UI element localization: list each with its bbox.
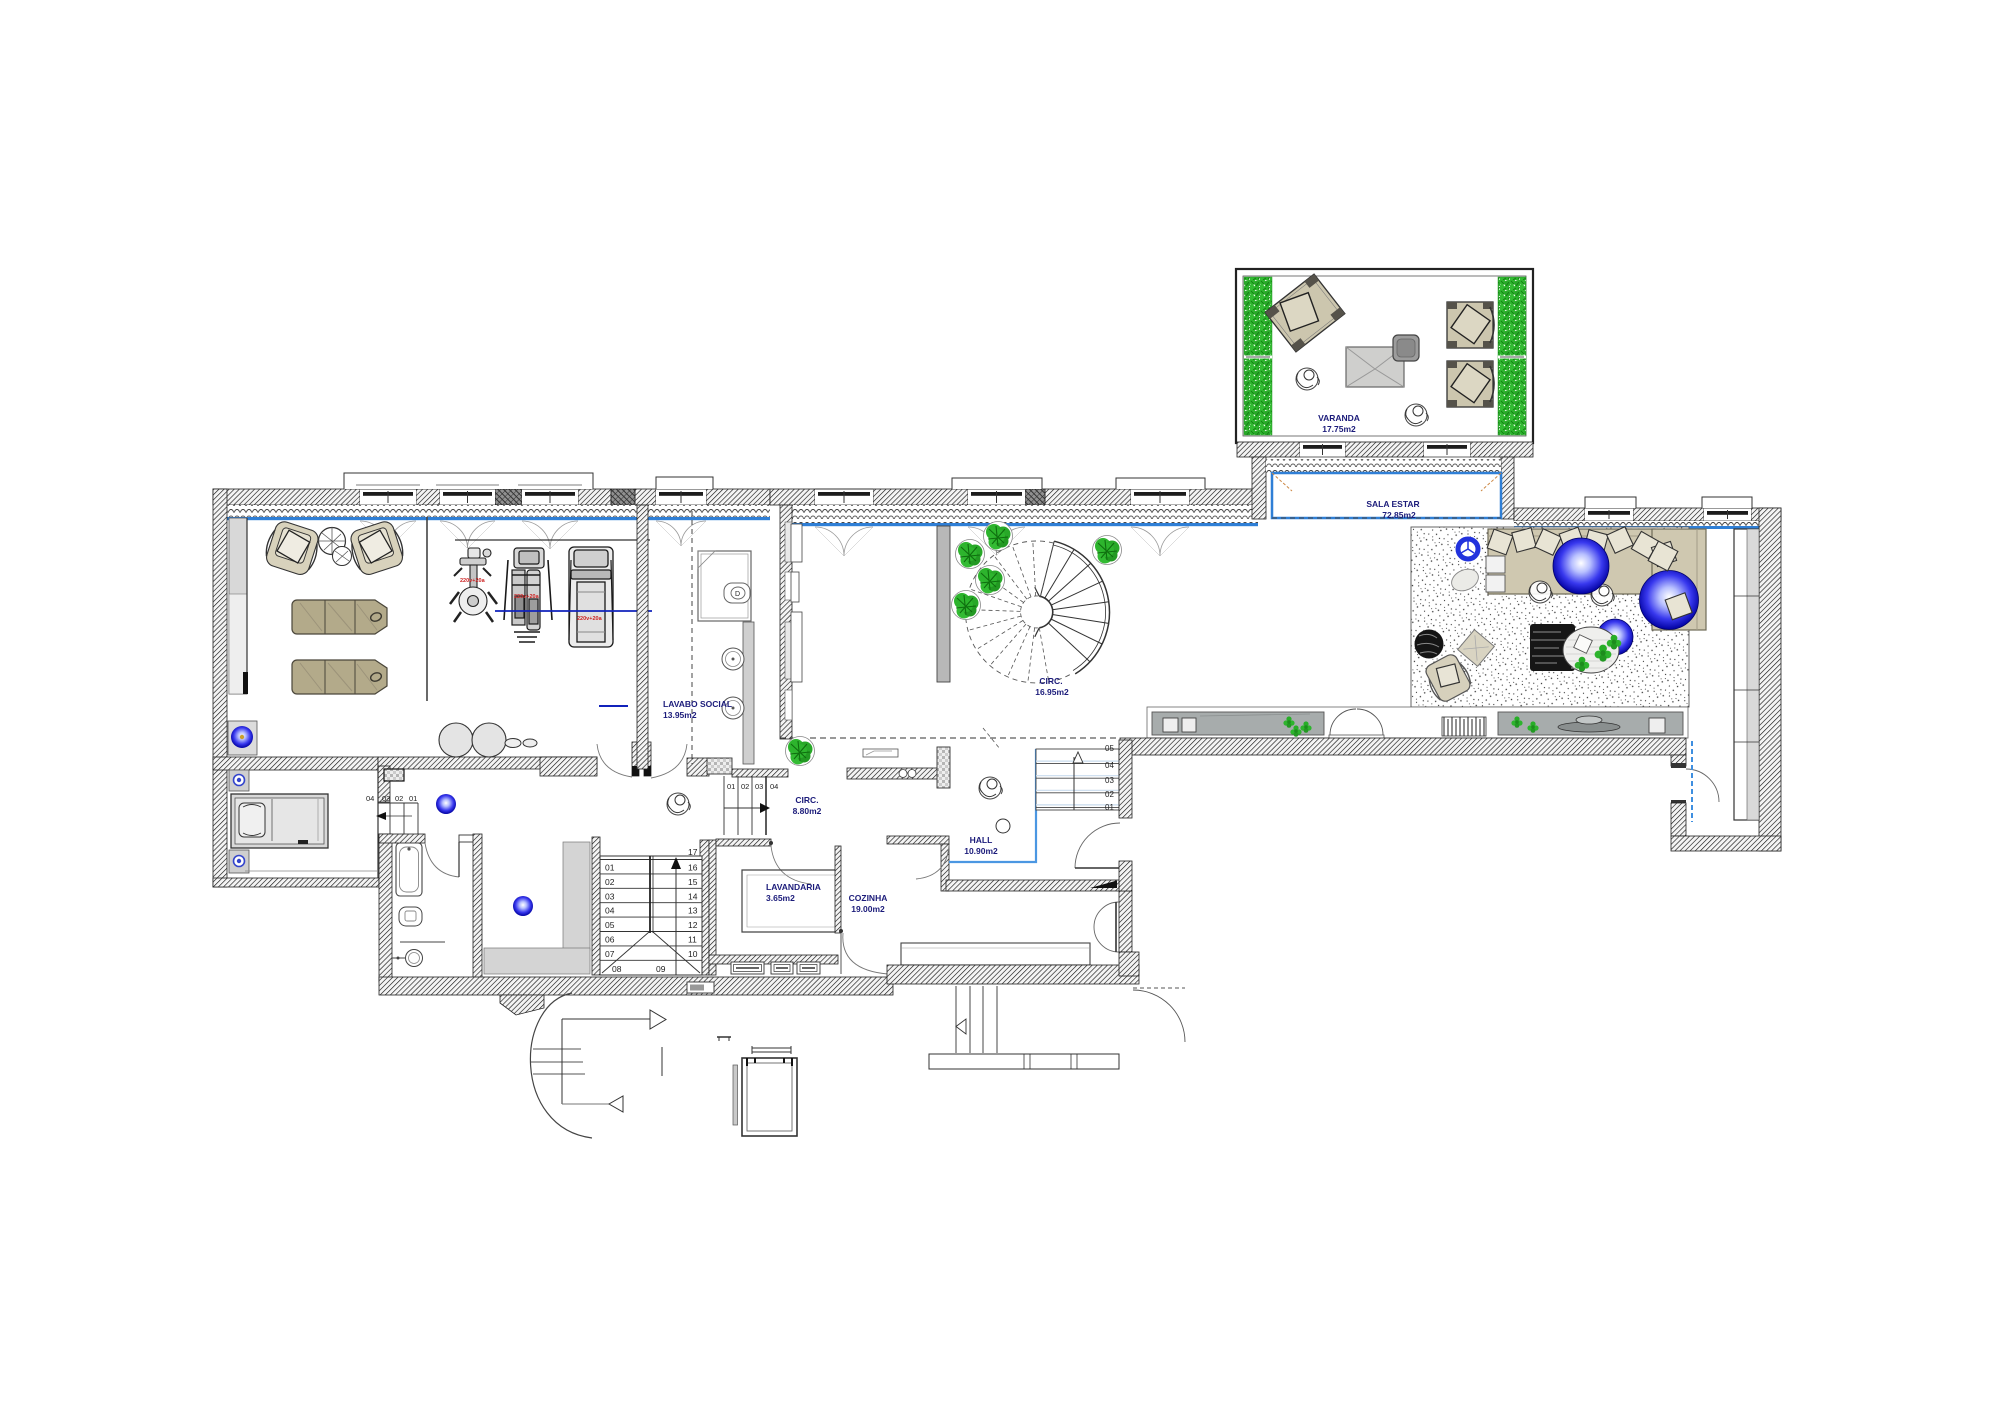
- svg-text:LAVANDARIA: LAVANDARIA: [766, 882, 821, 892]
- svg-text:01: 01: [1105, 803, 1114, 812]
- svg-text:LAVABO SOCIAL: LAVABO SOCIAL: [663, 699, 732, 709]
- svg-text:05: 05: [605, 920, 615, 930]
- svg-text:220v+20a: 220v+20a: [577, 616, 603, 622]
- svg-text:03: 03: [605, 891, 615, 901]
- svg-text:16: 16: [688, 863, 698, 873]
- svg-text:03: 03: [382, 794, 390, 803]
- svg-text:04: 04: [770, 782, 778, 791]
- svg-text:04: 04: [605, 906, 615, 916]
- svg-text:CIRC.: CIRC.: [1039, 676, 1062, 686]
- svg-text:SALA ESTAR: SALA ESTAR: [1366, 499, 1419, 509]
- svg-text:14: 14: [688, 891, 698, 901]
- svg-text:03: 03: [755, 782, 763, 791]
- svg-text:10.90m2: 10.90m2: [964, 846, 998, 856]
- svg-text:8.80m2: 8.80m2: [793, 806, 822, 816]
- svg-text:01: 01: [605, 863, 615, 873]
- svg-text:72.85m2: 72.85m2: [1382, 510, 1416, 520]
- svg-text:VARANDA: VARANDA: [1318, 413, 1360, 423]
- svg-text:220v+20a: 220v+20a: [514, 594, 540, 600]
- svg-text:08: 08: [612, 964, 622, 974]
- svg-text:3.65m2: 3.65m2: [766, 893, 795, 903]
- svg-text:220v+20a: 220v+20a: [460, 578, 486, 584]
- svg-text:15: 15: [688, 877, 698, 887]
- svg-text:CIRC.: CIRC.: [795, 795, 818, 805]
- svg-text:11: 11: [688, 935, 697, 945]
- svg-text:07: 07: [605, 949, 615, 959]
- svg-text:10: 10: [688, 949, 698, 959]
- svg-text:19.00m2: 19.00m2: [851, 904, 885, 914]
- svg-text:16.95m2: 16.95m2: [1035, 687, 1069, 697]
- svg-text:02: 02: [1105, 790, 1114, 799]
- svg-text:12: 12: [688, 920, 698, 930]
- svg-text:13: 13: [688, 906, 698, 916]
- svg-text:04: 04: [366, 794, 374, 803]
- svg-text:D: D: [735, 591, 740, 598]
- svg-text:02: 02: [605, 877, 615, 887]
- svg-text:13.95m2: 13.95m2: [663, 710, 697, 720]
- svg-text:06: 06: [605, 935, 615, 945]
- svg-text:HALL: HALL: [970, 835, 993, 845]
- svg-text:COZINHA: COZINHA: [849, 893, 888, 903]
- svg-text:09: 09: [656, 964, 666, 974]
- svg-text:03: 03: [1105, 776, 1114, 785]
- svg-text:02: 02: [741, 782, 749, 791]
- svg-text:17: 17: [688, 847, 698, 857]
- svg-text:01: 01: [409, 794, 417, 803]
- svg-text:02: 02: [395, 794, 403, 803]
- svg-text:01: 01: [727, 782, 735, 791]
- svg-text:17.75m2: 17.75m2: [1322, 424, 1356, 434]
- svg-text:04: 04: [1105, 761, 1114, 770]
- svg-text:05: 05: [1105, 744, 1114, 753]
